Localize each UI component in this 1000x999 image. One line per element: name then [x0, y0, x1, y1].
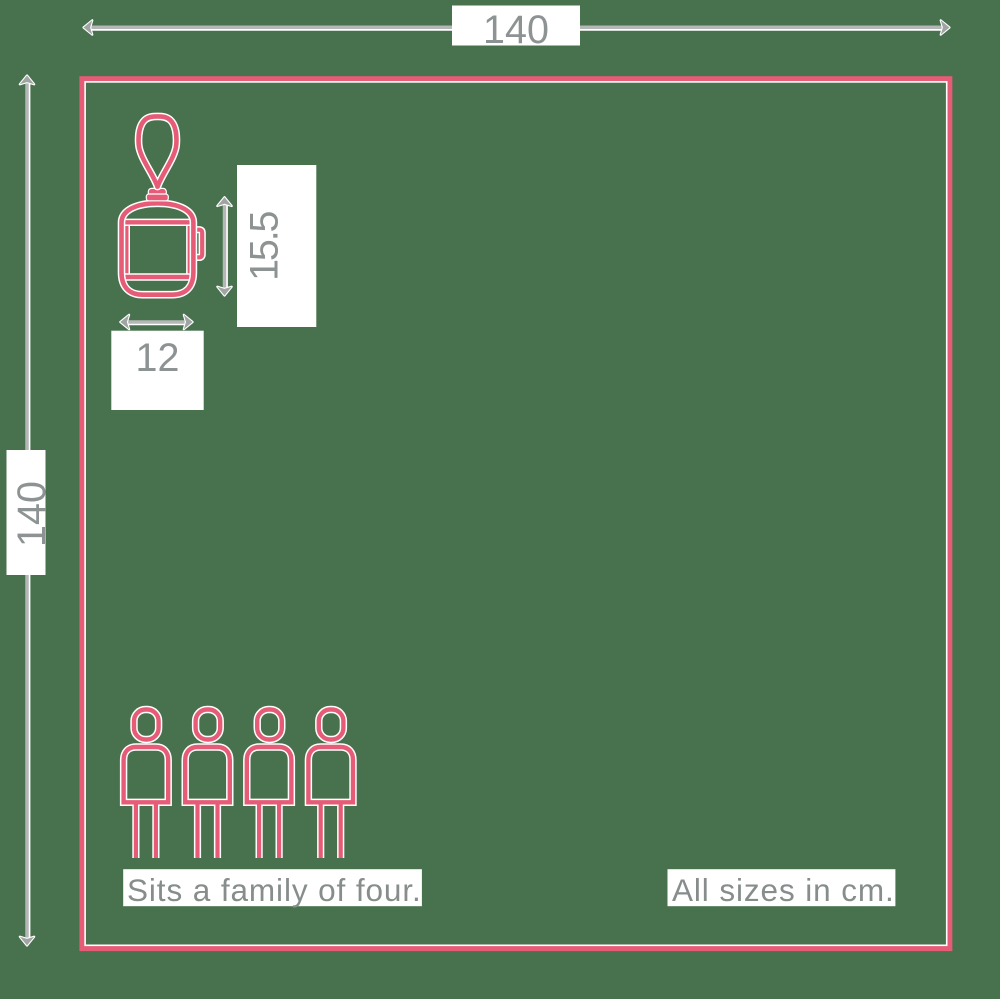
svg-text:12: 12 — [136, 336, 180, 380]
svg-text:All sizes in cm.: All sizes in cm. — [672, 872, 895, 908]
svg-text:15.5: 15.5 — [243, 212, 287, 281]
svg-text:140: 140 — [10, 481, 54, 547]
svg-text:140: 140 — [483, 8, 549, 52]
svg-text:Sits a family of four.: Sits a family of four. — [127, 872, 422, 908]
